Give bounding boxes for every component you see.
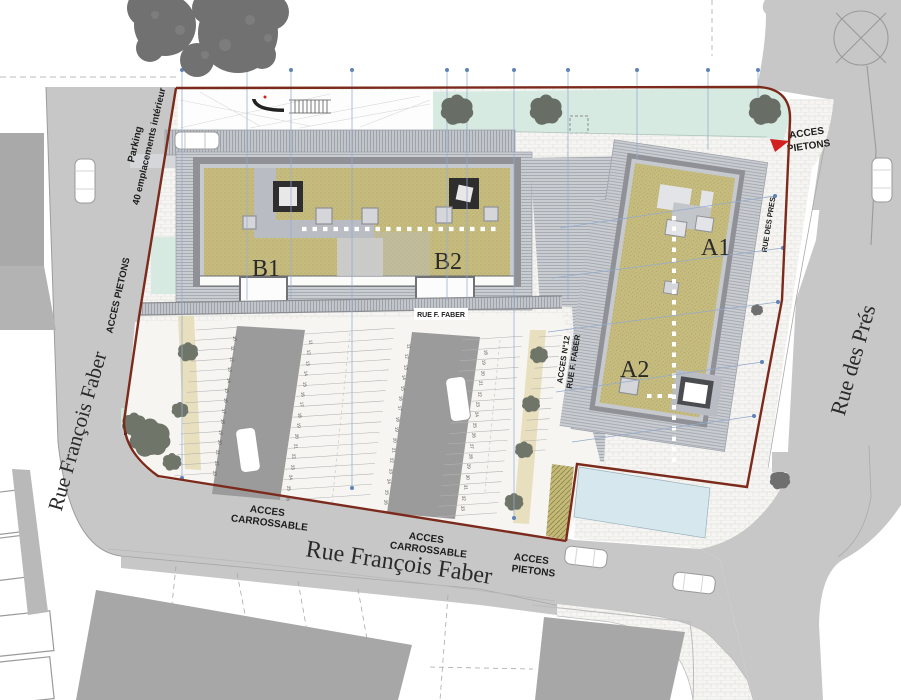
svg-text:B1: B1 xyxy=(252,256,280,282)
svg-text:RUE F. FABER: RUE F. FABER xyxy=(417,312,465,319)
svg-text:B2: B2 xyxy=(434,249,462,275)
